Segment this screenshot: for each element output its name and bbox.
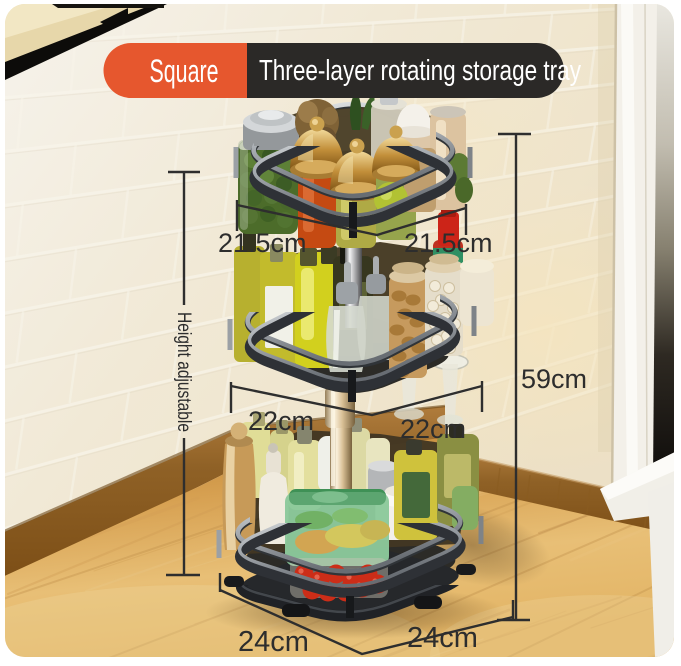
svg-text:21.5cm: 21.5cm — [404, 228, 493, 258]
svg-text:Three-layer rotating storage t: Three-layer rotating storage tray — [259, 55, 582, 87]
svg-text:22cm: 22cm — [400, 414, 466, 444]
svg-text:Height adjustable: Height adjustable — [173, 312, 195, 432]
svg-text:59cm: 59cm — [521, 364, 587, 394]
svg-text:Square: Square — [150, 53, 219, 89]
svg-text:24cm: 24cm — [407, 622, 478, 654]
svg-text:21.5cm: 21.5cm — [218, 228, 307, 258]
svg-text:24cm: 24cm — [238, 626, 309, 658]
svg-text:22cm: 22cm — [248, 406, 314, 436]
